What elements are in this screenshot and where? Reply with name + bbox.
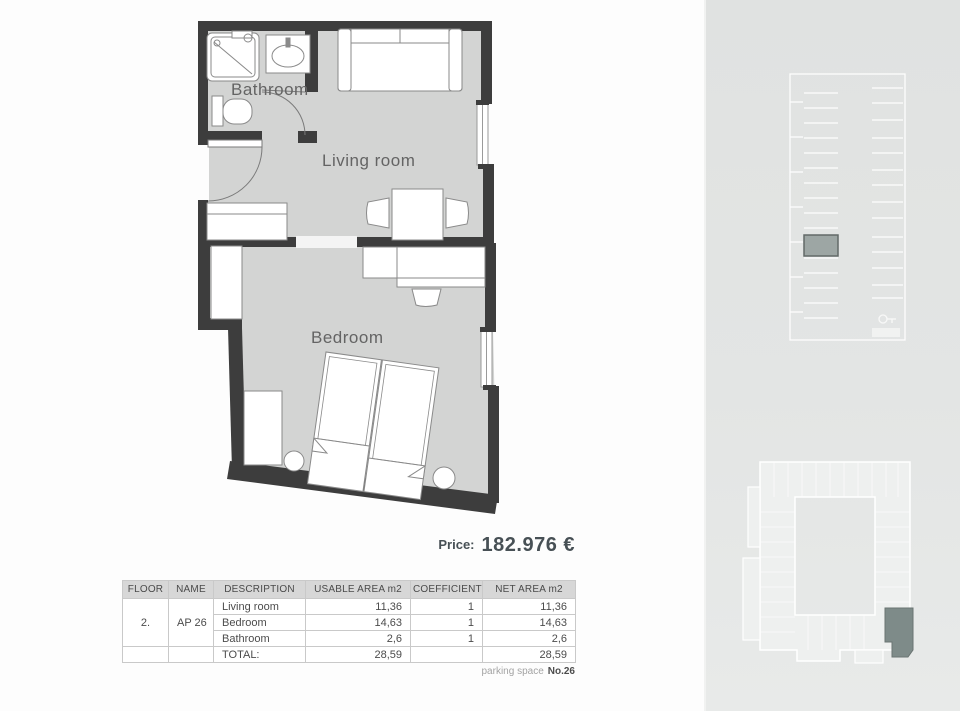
coefficient-cell: 1 <box>411 631 483 647</box>
table-total-row: TOTAL: 28,59 28,59 <box>123 647 576 663</box>
entrance-opening <box>196 145 209 201</box>
sidebar-diagrams <box>706 0 960 711</box>
living-room-window <box>476 100 491 169</box>
wall-right-4 <box>488 386 499 503</box>
pouf-left <box>284 451 304 471</box>
apartment-floorplan: Bathroom Living room Bedroom <box>185 10 525 540</box>
parking-note-number: No.26 <box>548 666 575 677</box>
building-wing-left-lower <box>743 558 760 640</box>
header-floor: FLOOR <box>123 581 169 599</box>
parking-entry <box>872 328 900 337</box>
net-cell: 2,6 <box>483 631 576 647</box>
sofa <box>338 29 462 91</box>
coefficient-cell: 1 <box>411 615 483 631</box>
toilet-icon <box>212 96 252 126</box>
building-wing-left-upper <box>748 487 760 547</box>
total-label-cell: TOTAL: <box>214 647 306 663</box>
net-cell: 11,36 <box>483 599 576 615</box>
floor-cell: 2. <box>123 599 169 647</box>
table-header-row: FLOOR NAME DESCRIPTION USABLE AREA m2 CO… <box>123 581 576 599</box>
pouf-right <box>433 467 455 489</box>
description-cell: Bedroom <box>214 615 306 631</box>
total-net-cell: 28,59 <box>483 647 576 663</box>
net-cell: 14,63 <box>483 615 576 631</box>
table-row: 2. AP 26 Living room 11,36 1 11,36 <box>123 599 576 615</box>
key-icon <box>879 315 896 323</box>
usable-cell: 2,6 <box>306 631 411 647</box>
chair-right <box>446 198 469 228</box>
wardrobe <box>244 391 282 465</box>
highlighted-parking-space <box>804 235 838 256</box>
total-usable-cell: 28,59 <box>306 647 411 663</box>
double-bed <box>307 352 438 500</box>
building-wing-bottom <box>855 650 883 663</box>
area-table: FLOOR NAME DESCRIPTION USABLE AREA m2 CO… <box>122 580 576 663</box>
parking-left-stubs <box>790 102 803 312</box>
desk-chair <box>412 289 441 307</box>
description-cell: Bathroom <box>214 631 306 647</box>
bathroom-label: Bathroom <box>231 80 309 99</box>
sidebar-panel <box>704 0 960 711</box>
building-site-plan <box>743 462 913 663</box>
name-cell: AP 26 <box>169 599 214 647</box>
header-description: DESCRIPTION <box>214 581 306 599</box>
hall-cabinet <box>207 203 287 240</box>
living-room-label: Living room <box>322 151 415 170</box>
floor-cell-empty <box>123 647 169 663</box>
bedroom-doorway-opening <box>296 236 357 248</box>
wall-right-3 <box>485 243 496 332</box>
header-usable: USABLE AREA m2 <box>306 581 411 599</box>
parking-note-label: parking space <box>482 666 544 677</box>
usable-cell: 14,63 <box>306 615 411 631</box>
total-coefficient-cell <box>411 647 483 663</box>
sink-icon <box>266 35 310 73</box>
wall-left-bedroom-upper <box>198 243 210 327</box>
parking-left-column <box>804 93 838 318</box>
coefficient-cell: 1 <box>411 599 483 615</box>
wall-bathroom-corner <box>298 131 317 143</box>
shower-icon <box>207 31 259 81</box>
parking-outline <box>790 74 905 340</box>
price-row: Price:182.976 € <box>280 534 575 557</box>
header-net: NET AREA m2 <box>483 581 576 599</box>
price-label: Price: <box>438 537 474 552</box>
bedroom-label: Bedroom <box>311 328 383 347</box>
description-cell: Living room <box>214 599 306 615</box>
wall-right-1 <box>481 21 492 104</box>
parking-note: parking spaceNo.26 <box>275 666 575 677</box>
name-cell-empty <box>169 647 214 663</box>
chair-left <box>367 198 390 228</box>
header-coefficient: COEFFICIENT <box>411 581 483 599</box>
parking-diagram <box>790 74 905 340</box>
parking-right-column <box>872 88 903 298</box>
wall-right-2 <box>483 164 494 245</box>
bedroom-closet-top <box>211 246 242 319</box>
price-value: 182.976 € <box>482 534 575 556</box>
usable-cell: 11,36 <box>306 599 411 615</box>
header-name: NAME <box>169 581 214 599</box>
